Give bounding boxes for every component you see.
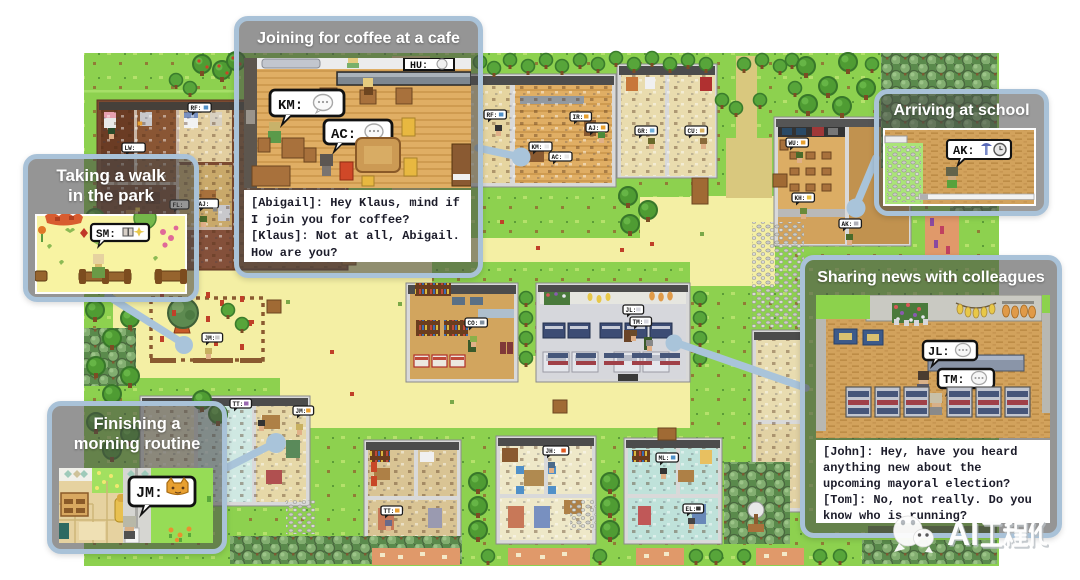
svg-text:JL:: JL: <box>626 307 637 314</box>
svg-text:TT:: TT: <box>233 401 244 408</box>
svg-text:SM:: SM: <box>96 229 116 241</box>
svg-text:LW:: LW: <box>125 145 136 152</box>
svg-text:JH:: JH: <box>546 448 557 455</box>
svg-text:AC:: AC: <box>552 154 563 161</box>
svg-text:JM:: JM: <box>136 485 163 502</box>
svg-text:TM:: TM: <box>633 319 644 326</box>
svg-text:EL:: EL: <box>686 506 697 513</box>
svg-text:AI: AI <box>947 516 979 552</box>
svg-text:JM:: JM: <box>296 408 307 415</box>
svg-text:CU:: CU: <box>688 128 699 135</box>
svg-text:TM:: TM: <box>943 373 965 387</box>
svg-text:RF:: RF: <box>487 112 498 119</box>
svg-text:GR:: GR: <box>638 128 649 135</box>
svg-text:CO:: CO: <box>468 320 479 327</box>
svg-text:JM:: JM: <box>205 335 216 342</box>
svg-text:JL:: JL: <box>928 345 950 359</box>
svg-text:AJ:: AJ: <box>199 201 210 208</box>
svg-text:KH:: KH: <box>795 195 806 202</box>
svg-text:AC:: AC: <box>331 127 356 143</box>
svg-text:ML:: ML: <box>659 455 670 462</box>
svg-text:IR:: IR: <box>573 114 584 121</box>
svg-text:AJ:: AJ: <box>589 125 600 132</box>
svg-text:WU:: WU: <box>789 140 800 147</box>
svg-text:KM:: KM: <box>532 144 543 151</box>
svg-text:AK:: AK: <box>953 144 975 158</box>
svg-text:TT:: TT: <box>384 508 395 515</box>
svg-text:AK:: AK: <box>842 221 853 228</box>
svg-text:RF:: RF: <box>191 105 202 112</box>
svg-text:KM:: KM: <box>278 98 303 114</box>
svg-text:HU:: HU: <box>410 61 428 72</box>
